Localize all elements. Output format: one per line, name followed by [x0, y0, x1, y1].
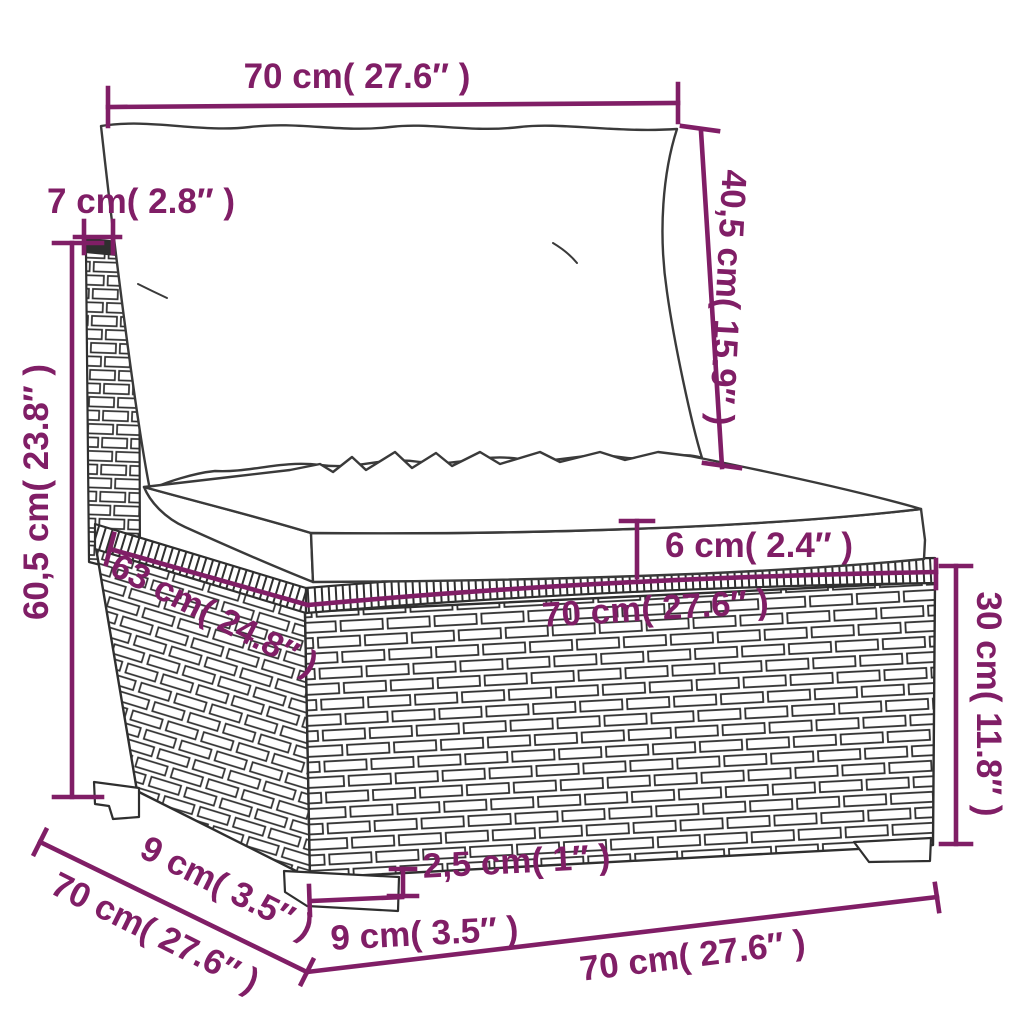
sofa-line-art — [84, 124, 935, 911]
dim-leg-height: 2,5 cm( 1″ ) — [389, 837, 611, 896]
leg-back-left — [94, 782, 139, 819]
dim-label-top-width: 70 cm( 27.6″ ) — [244, 57, 471, 96]
dim-label-back-thickness: 7 cm( 2.8″ ) — [47, 182, 235, 221]
dim-top-width: 70 cm( 27.6″ ) — [108, 57, 678, 126]
dim-back-cushion-height: 40,5 cm( 15.9″ ) — [682, 126, 754, 468]
dimension-diagram: 70 cm( 27.6″ ) 7 cm( 2.8″ ) 60,5 cm( 23.… — [0, 0, 1024, 1024]
dim-label-bottom-width: 70 cm( 27.6″ ) — [578, 922, 808, 988]
dim-label-base-height: 30 cm( 11.8″ ) — [969, 592, 1008, 817]
dim-label-total-height: 60,5 cm( 23.8″ ) — [17, 364, 56, 620]
dim-label-seat-cushion-thickness: 6 cm( 2.4″ ) — [665, 526, 853, 565]
leg-front-right — [854, 838, 931, 862]
back-cushion — [101, 124, 702, 490]
dim-base-height: 30 cm( 11.8″ ) — [941, 566, 1008, 844]
dim-label-back-cushion-height: 40,5 cm( 15.9″ ) — [701, 169, 753, 427]
